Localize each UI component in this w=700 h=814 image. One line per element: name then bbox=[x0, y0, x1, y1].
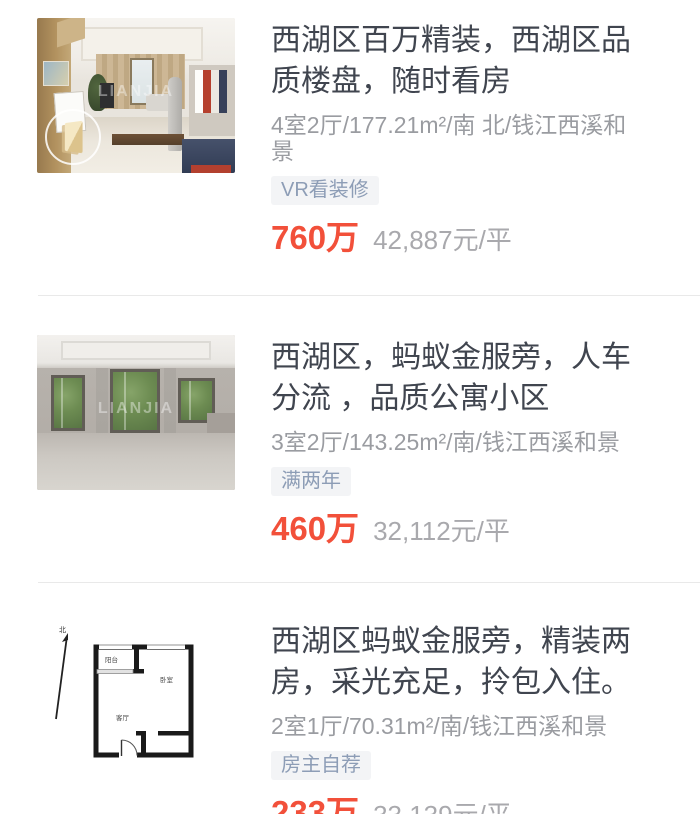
listing-card[interactable]: LIANJIA 西湖区百万精装，西湖区品质楼盘，随时看房 4室2厅/177.21… bbox=[0, 18, 700, 258]
price-row: 760万 42,887元/平 bbox=[271, 218, 643, 258]
listing-floorplan[interactable]: 北 bbox=[37, 619, 235, 774]
card-divider bbox=[38, 582, 700, 583]
listing-title[interactable]: 西湖区蚂蚁金服旁，精装两房，采光充足，拎包入住。 bbox=[271, 621, 643, 703]
listing-card[interactable]: 北 bbox=[0, 619, 700, 814]
vr-cube-icon bbox=[65, 121, 83, 154]
photo-watermark: LIANJIA bbox=[37, 400, 235, 418]
listing-info: 西湖区蚂蚁金服旁，精装两房，采光充足，拎包入住。 2室1厅/70.31m²/南/… bbox=[271, 619, 643, 814]
card-divider bbox=[38, 295, 700, 296]
listing-unit-price: 33,139元/平 bbox=[373, 795, 512, 814]
listing-total-price: 233万 bbox=[271, 793, 359, 814]
photo-floor-layer bbox=[37, 433, 235, 490]
listing-details: 2室1厅/70.31m²/南/钱江西溪和景 bbox=[271, 713, 643, 739]
listing-details: 3室2厅/143.25m²/南/钱江西溪和景 bbox=[271, 429, 643, 455]
room-label-balcony: 阳台 bbox=[105, 655, 118, 664]
photo-desk bbox=[112, 134, 183, 145]
listing-unit-price: 42,887元/平 bbox=[373, 220, 512, 257]
photo-red-accent bbox=[191, 165, 231, 173]
listing-photo-living-room[interactable]: LIANJIA bbox=[37, 18, 235, 173]
photo-ceiling-tray bbox=[61, 341, 211, 360]
listing-total-price: 760万 bbox=[271, 218, 359, 258]
room-label-bedroom: 卧室 bbox=[160, 675, 174, 684]
listing-total-price: 460万 bbox=[271, 509, 359, 549]
listing-unit-price: 32,112元/平 bbox=[373, 511, 510, 548]
price-row: 460万 32,112元/平 bbox=[271, 509, 643, 549]
listing-card[interactable]: LIANJIA 西湖区，蚂蚁金服旁，人车分流 ，品质公寓小区 3室2厅/143.… bbox=[0, 335, 700, 549]
listing-info: 西湖区百万精装，西湖区品质楼盘，随时看房 4室2厅/177.21m²/南 北/钱… bbox=[271, 18, 643, 258]
listing-photo-empty-room[interactable]: LIANJIA bbox=[37, 335, 235, 490]
price-row: 233万 33,139元/平 bbox=[271, 793, 643, 814]
listing-tag-badge: 满两年 bbox=[271, 467, 351, 496]
listing-info: 西湖区，蚂蚁金服旁，人车分流 ，品质公寓小区 3室2厅/143.25m²/南/钱… bbox=[271, 335, 643, 549]
listing-tag-badge: 房主自荐 bbox=[271, 751, 371, 780]
north-label: 北 bbox=[59, 626, 66, 634]
listing-title[interactable]: 西湖区，蚂蚁金服旁，人车分流 ，品质公寓小区 bbox=[271, 337, 643, 419]
photo-watermark: LIANJIA bbox=[37, 83, 235, 101]
floorplan-drawing: 北 bbox=[37, 619, 235, 774]
listing-tag-badge: VR看装修 bbox=[271, 176, 379, 205]
listing-details: 4室2厅/177.21m²/南 北/钱江西溪和景 bbox=[271, 112, 643, 164]
room-label-living-room: 客厅 bbox=[116, 713, 130, 722]
listing-title[interactable]: 西湖区百万精装，西湖区品质楼盘，随时看房 bbox=[271, 20, 643, 102]
vr-badge-icon bbox=[45, 109, 101, 165]
north-arrow-icon bbox=[56, 636, 67, 719]
